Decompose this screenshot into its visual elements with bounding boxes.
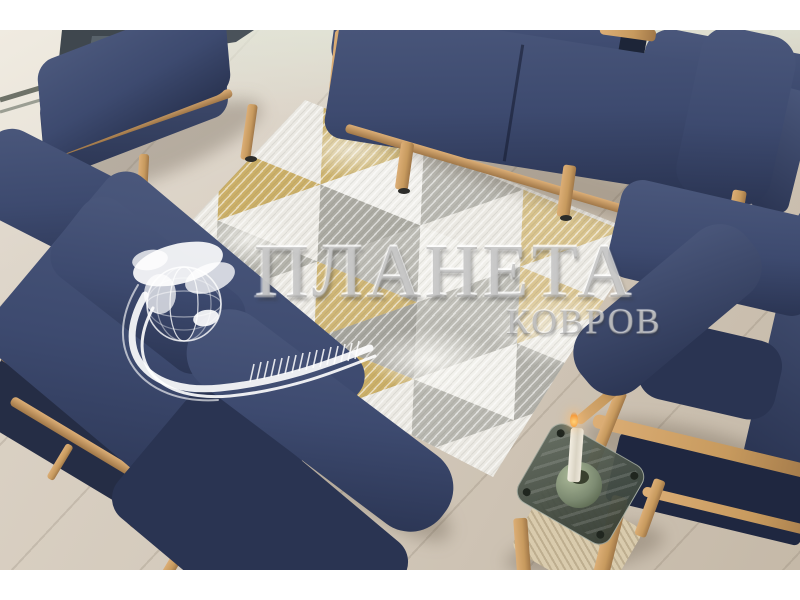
top-border — [0, 0, 800, 30]
leg-foot — [245, 156, 257, 162]
bottom-border — [0, 570, 800, 600]
leg-foot — [560, 215, 572, 221]
globe-continents — [129, 233, 240, 328]
brand-subtitle: КОВРОВ — [506, 304, 662, 340]
watermarked-room-photo: ПЛАНЕТА КОВРОВ — [0, 0, 800, 600]
photo-area: ПЛАНЕТА КОВРОВ — [0, 30, 800, 570]
leg-foot — [398, 188, 410, 194]
candle-flame — [570, 412, 578, 427]
brand-title: ПЛАНЕТА — [254, 234, 635, 310]
